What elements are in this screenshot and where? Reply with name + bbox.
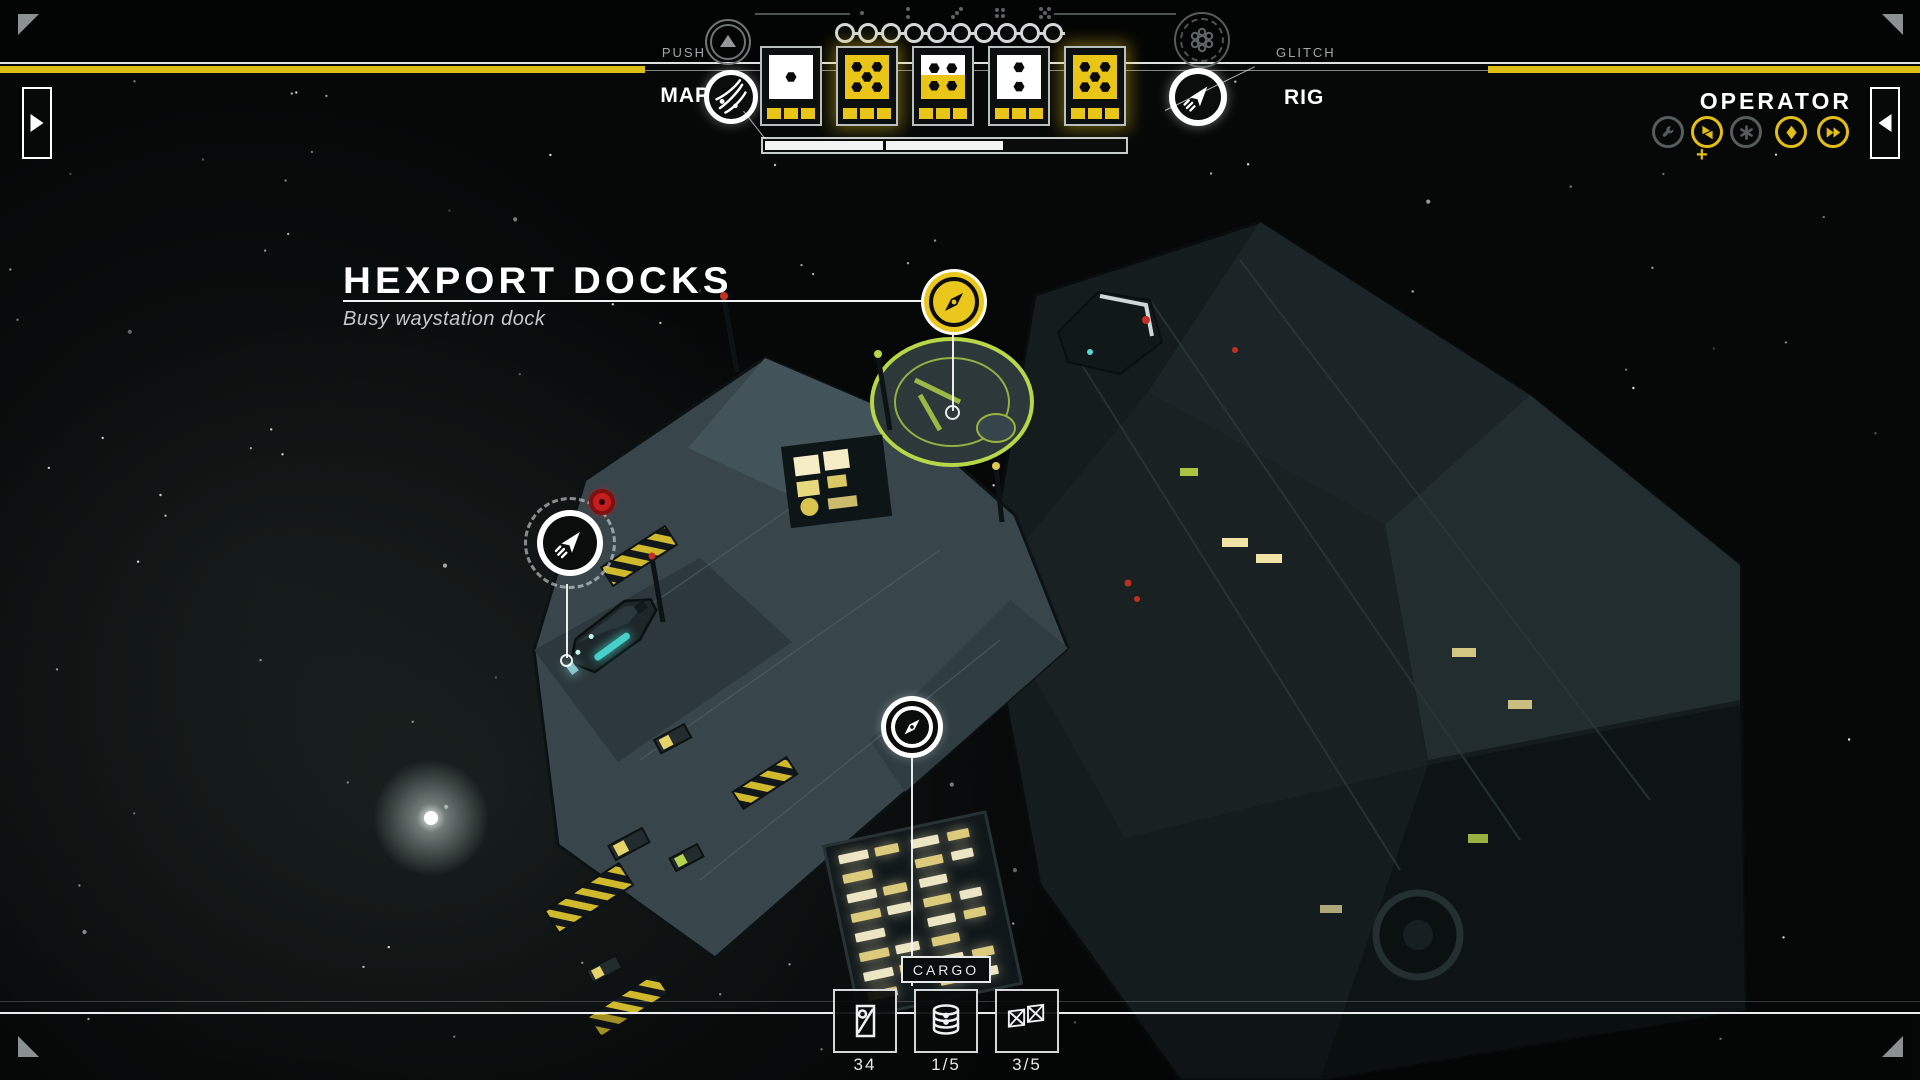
operator-plus: + bbox=[1696, 144, 1708, 167]
die-pip bbox=[786, 72, 797, 83]
ghost-pip bbox=[906, 7, 910, 11]
die-pip bbox=[862, 72, 873, 83]
nav-arrow-icon bbox=[543, 516, 597, 570]
track-circle bbox=[1043, 23, 1063, 43]
die-1-value-1[interactable] bbox=[760, 46, 822, 126]
die-slots bbox=[843, 108, 891, 119]
ghost-pip bbox=[1001, 14, 1005, 18]
progress-segment-empty bbox=[1006, 141, 1124, 150]
ability-diamond-icon[interactable] bbox=[1775, 116, 1807, 148]
game-screen: PUSH MAP GLITCH RIG HEXPORT DOCKS Busy w… bbox=[0, 0, 1920, 1080]
die-slot bbox=[784, 108, 798, 119]
die-face bbox=[769, 55, 813, 99]
marker-anchor bbox=[560, 654, 573, 667]
cargo-item-stack-icon[interactable] bbox=[914, 989, 978, 1053]
ghost-pip bbox=[959, 7, 963, 11]
cargo-items: 341/53/5 bbox=[833, 989, 1063, 1080]
ghost-pip bbox=[1039, 15, 1043, 19]
die-slots bbox=[995, 108, 1043, 119]
die-5-value-5[interactable] bbox=[1064, 46, 1126, 126]
die-pip bbox=[851, 82, 862, 93]
die-face bbox=[845, 55, 889, 99]
die-slot bbox=[1029, 108, 1043, 119]
ghost-pip bbox=[995, 8, 999, 12]
dock-action-marker[interactable] bbox=[921, 269, 987, 335]
ghost-die-4 bbox=[992, 5, 1008, 21]
ghost-pip bbox=[951, 15, 955, 19]
glitch-button[interactable] bbox=[1174, 12, 1230, 68]
die-slots bbox=[1071, 108, 1119, 119]
ghost-pip bbox=[1047, 15, 1051, 19]
die-pip bbox=[1079, 61, 1090, 72]
ability-ffwd-icon[interactable] bbox=[1817, 116, 1849, 148]
die-pip bbox=[946, 80, 957, 91]
space-scene bbox=[0, 0, 1920, 1080]
ghost-die-3 bbox=[949, 5, 965, 21]
ghost-pip bbox=[1047, 7, 1051, 11]
ability-asterisk-icon[interactable] bbox=[1730, 116, 1762, 148]
rig-button[interactable] bbox=[1169, 68, 1227, 126]
compass-icon bbox=[928, 276, 980, 328]
ghost-pip bbox=[1001, 8, 1005, 12]
track-circle bbox=[881, 23, 901, 43]
ghost-dice-track bbox=[840, 4, 1080, 24]
cargo-label-box: CARGO bbox=[901, 956, 991, 983]
track-circle bbox=[835, 23, 855, 43]
marker-anchor bbox=[945, 405, 960, 420]
ghost-die-2 bbox=[900, 5, 916, 21]
die-pip bbox=[1014, 81, 1025, 92]
chevron-right-icon bbox=[31, 114, 44, 132]
chevron-left-icon bbox=[1879, 114, 1892, 132]
die-slot bbox=[995, 108, 1009, 119]
die-pip bbox=[851, 61, 862, 72]
track-circle bbox=[974, 23, 994, 43]
dice-cycle-track bbox=[835, 23, 1069, 45]
die-4-value-2[interactable] bbox=[988, 46, 1050, 126]
ghost-pip bbox=[860, 11, 864, 15]
die-pip bbox=[872, 61, 883, 72]
die-slots bbox=[919, 108, 967, 119]
ghost-die-1 bbox=[854, 5, 870, 21]
die-slot bbox=[767, 108, 781, 119]
track-circle bbox=[904, 23, 924, 43]
compass-icon bbox=[895, 710, 929, 744]
die-slot bbox=[801, 108, 815, 119]
ring bbox=[537, 510, 603, 576]
die-face bbox=[1073, 55, 1117, 99]
progress-segment-filled bbox=[765, 141, 883, 150]
die-3-value-4[interactable] bbox=[912, 46, 974, 126]
die-slot bbox=[953, 108, 967, 119]
die-pip bbox=[1079, 82, 1090, 93]
cargo-item-value: 1/5 bbox=[914, 1055, 978, 1075]
die-slot bbox=[1071, 108, 1085, 119]
cargo-item-crate-icon[interactable] bbox=[995, 989, 1059, 1053]
die-2-value-5[interactable] bbox=[836, 46, 898, 126]
die-pip bbox=[929, 63, 940, 74]
die-slot bbox=[877, 108, 891, 119]
triangle-up-icon bbox=[720, 35, 736, 47]
cargo-item-value: 3/5 bbox=[995, 1055, 1059, 1075]
die-pip bbox=[1090, 72, 1101, 83]
die-slot bbox=[936, 108, 950, 119]
nav-arrow-icon bbox=[1175, 74, 1221, 120]
map-button[interactable] bbox=[704, 70, 758, 124]
ghost-die-5 bbox=[1037, 5, 1053, 21]
track-circle bbox=[927, 23, 947, 43]
track-circle bbox=[997, 23, 1017, 43]
ghost-pip bbox=[955, 11, 959, 15]
operator-title: OPERATOR bbox=[1600, 88, 1852, 115]
location-title: HEXPORT DOCKS bbox=[343, 260, 733, 302]
track-circle bbox=[858, 23, 878, 43]
marker-connector bbox=[566, 584, 568, 658]
die-slot bbox=[919, 108, 933, 119]
cargo-item-value: 34 bbox=[833, 1055, 897, 1075]
push-button[interactable] bbox=[705, 19, 751, 65]
track-circle bbox=[951, 23, 971, 43]
cargo-action-marker[interactable] bbox=[881, 696, 943, 758]
lit-windows bbox=[781, 434, 892, 528]
die-slot bbox=[1012, 108, 1026, 119]
location-subtitle: Busy waystation dock bbox=[343, 308, 545, 331]
dice-progress-bar bbox=[761, 137, 1128, 154]
push-label: PUSH bbox=[630, 45, 706, 60]
ghost-line-left bbox=[755, 13, 850, 15]
die-pip bbox=[1014, 62, 1025, 73]
die-slot bbox=[1105, 108, 1119, 119]
operator-abilities bbox=[1652, 116, 1852, 152]
ghost-pip bbox=[1043, 11, 1047, 15]
marker-connector bbox=[952, 333, 954, 411]
die-pip bbox=[872, 82, 883, 93]
marker-connector bbox=[911, 756, 913, 986]
die-pip bbox=[1100, 61, 1111, 72]
location-underline bbox=[343, 300, 923, 302]
progress-segment-filled bbox=[886, 141, 1004, 150]
die-face bbox=[921, 55, 965, 99]
glitch-flower-icon bbox=[1182, 20, 1222, 60]
die-pip bbox=[946, 63, 957, 74]
die-pip bbox=[929, 80, 940, 91]
left-panel-toggle[interactable] bbox=[22, 87, 52, 159]
rig-label: RIG bbox=[1284, 86, 1324, 110]
die-face bbox=[997, 55, 1041, 99]
ghost-line-right bbox=[1054, 13, 1176, 15]
cargo-item-cryo-icon[interactable] bbox=[833, 989, 897, 1053]
ability-wrench-icon[interactable] bbox=[1652, 116, 1684, 148]
cargo-label: CARGO bbox=[913, 962, 979, 978]
alert-badge[interactable] bbox=[589, 489, 615, 515]
map-label: MAP bbox=[640, 84, 710, 108]
track-circle bbox=[1020, 23, 1040, 43]
right-panel-toggle[interactable] bbox=[1870, 87, 1900, 159]
die-pip bbox=[1100, 82, 1111, 93]
planet-icon bbox=[709, 75, 753, 119]
frame-gold-bar-right bbox=[1488, 66, 1920, 73]
die-slot bbox=[1088, 108, 1102, 119]
die-slots bbox=[767, 108, 815, 119]
glitch-label: GLITCH bbox=[1276, 45, 1336, 60]
die-slot bbox=[860, 108, 874, 119]
frame-gold-bar-left bbox=[0, 66, 645, 73]
ghost-pip bbox=[995, 14, 999, 18]
ghost-pip bbox=[906, 15, 910, 19]
die-slot bbox=[843, 108, 857, 119]
dice-row bbox=[760, 46, 1140, 128]
